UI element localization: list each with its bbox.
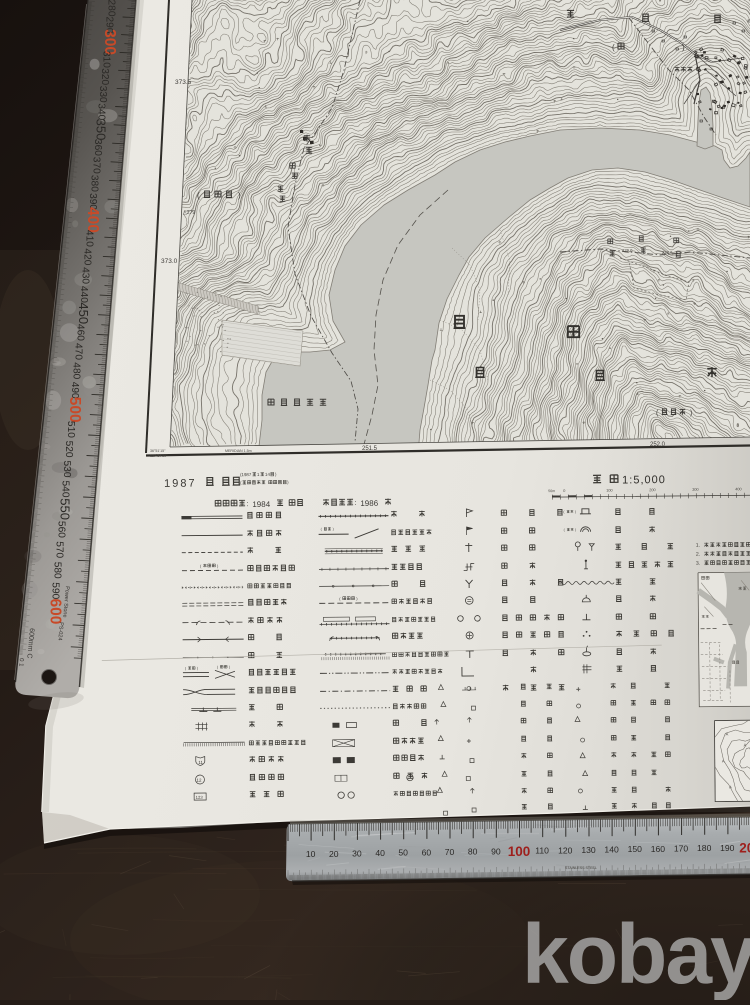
svg-text:140: 140: [604, 845, 619, 855]
svg-text:0: 0: [563, 489, 565, 493]
svg-text:470: 470: [73, 343, 84, 360]
svg-text:90: 90: [491, 846, 501, 856]
svg-text:410: 410: [83, 230, 94, 247]
svg-text:MERIDIAN 1.5m: MERIDIAN 1.5m: [225, 449, 252, 453]
svg-text:570: 570: [54, 541, 65, 558]
svg-text:123: 123: [196, 795, 204, 800]
svg-text:251.5: 251.5: [362, 446, 378, 452]
svg-text::: :: [246, 499, 248, 508]
svg-text:): ): [575, 528, 576, 532]
svg-text:A: A: [729, 784, 732, 789]
svg-text:100: 100: [508, 844, 531, 859]
svg-text:400: 400: [735, 487, 741, 491]
svg-text:kobay: kobay: [522, 907, 750, 1000]
svg-text:310: 310: [100, 51, 111, 68]
svg-text:228.6: 228.6: [662, 250, 673, 255]
svg-text:): ): [238, 191, 241, 200]
svg-text:500: 500: [66, 397, 83, 423]
svg-text:252.0: 252.0: [650, 442, 666, 448]
svg-text:373.5: 373.5: [175, 79, 192, 86]
svg-text:370: 370: [90, 157, 101, 174]
svg-text:A: A: [744, 742, 747, 747]
svg-text:1:5,000: 1:5,000: [622, 474, 666, 486]
svg-text:20: 20: [329, 849, 339, 859]
svg-text:30: 30: [352, 848, 362, 858]
svg-text:1.: 1.: [696, 543, 700, 549]
svg-text:△279: △279: [183, 210, 195, 216]
svg-text:300: 300: [692, 488, 698, 492]
svg-text:373.0: 373.0: [161, 258, 178, 265]
svg-text:14: 14: [265, 472, 270, 477]
svg-text:50m: 50m: [548, 489, 555, 493]
svg-text:0 1: 0 1: [17, 658, 24, 667]
svg-text:280: 280: [105, 0, 116, 17]
svg-text:180: 180: [697, 843, 712, 853]
svg-text:70: 70: [445, 847, 455, 857]
svg-text:600: 600: [47, 599, 64, 625]
svg-text:550: 550: [57, 498, 72, 520]
svg-text:190: 190: [720, 843, 735, 853]
svg-text:130: 130: [581, 845, 596, 855]
svg-text:580: 580: [52, 562, 63, 579]
svg-text:560: 560: [56, 521, 67, 538]
svg-text:): ): [197, 667, 198, 671]
svg-text:36°51'15": 36°51'15": [150, 449, 166, 453]
svg-text:(: (: [197, 191, 200, 200]
svg-text:360: 360: [92, 139, 103, 156]
svg-text:200: 200: [739, 841, 750, 856]
svg-text:170: 170: [674, 844, 689, 854]
svg-text:450: 450: [76, 302, 91, 324]
svg-text:590: 590: [50, 582, 61, 599]
svg-text:120: 120: [558, 845, 573, 855]
svg-text:150: 150: [628, 844, 643, 854]
svg-text:160: 160: [651, 844, 666, 854]
svg-text:520: 520: [63, 441, 74, 458]
svg-text:480: 480: [71, 362, 82, 379]
svg-text:127°34'30": 127°34'30": [150, 454, 168, 458]
svg-text:350: 350: [94, 119, 109, 141]
svg-text:460: 460: [74, 324, 85, 341]
svg-text:(1987: (1987: [240, 472, 252, 477]
svg-text:320: 320: [99, 68, 110, 85]
svg-text:330: 330: [97, 86, 108, 103]
svg-text:50: 50: [398, 848, 408, 858]
svg-text:2.: 2.: [696, 552, 700, 558]
svg-text:): ): [229, 665, 230, 669]
svg-text:3.: 3.: [696, 561, 700, 567]
svg-text:80: 80: [468, 847, 478, 857]
svg-text:200: 200: [649, 488, 655, 492]
svg-text:A: A: [722, 758, 725, 763]
svg-text:510: 510: [65, 421, 76, 438]
svg-text:A: A: [726, 731, 729, 736]
svg-text:110: 110: [535, 846, 549, 856]
svg-text:11: 11: [198, 760, 203, 765]
svg-text:420: 420: [82, 248, 93, 265]
svg-text:530: 530: [61, 461, 72, 478]
svg-text:STAINLESS STEEL: STAINLESS STEEL: [565, 866, 597, 870]
svg-text:): ): [575, 510, 576, 514]
svg-text:1986: 1986: [360, 499, 378, 508]
svg-text:540: 540: [59, 481, 70, 498]
svg-text:40: 40: [375, 848, 385, 858]
svg-text:380: 380: [89, 175, 100, 192]
svg-text:): ): [682, 43, 685, 52]
svg-text:100: 100: [606, 489, 612, 493]
svg-text:12: 12: [196, 778, 202, 783]
svg-text:10: 10: [306, 849, 316, 859]
svg-text:): ): [333, 527, 334, 531]
svg-text:): ): [690, 410, 692, 417]
svg-text:430: 430: [80, 267, 91, 284]
svg-text:229.0: 229.0: [622, 248, 633, 253]
svg-text:440: 440: [78, 286, 89, 303]
svg-text:1984: 1984: [252, 500, 270, 509]
svg-text:60: 60: [422, 847, 432, 857]
svg-text::: :: [354, 498, 356, 507]
svg-text:(: (: [612, 43, 615, 52]
svg-text:1987: 1987: [164, 478, 197, 490]
